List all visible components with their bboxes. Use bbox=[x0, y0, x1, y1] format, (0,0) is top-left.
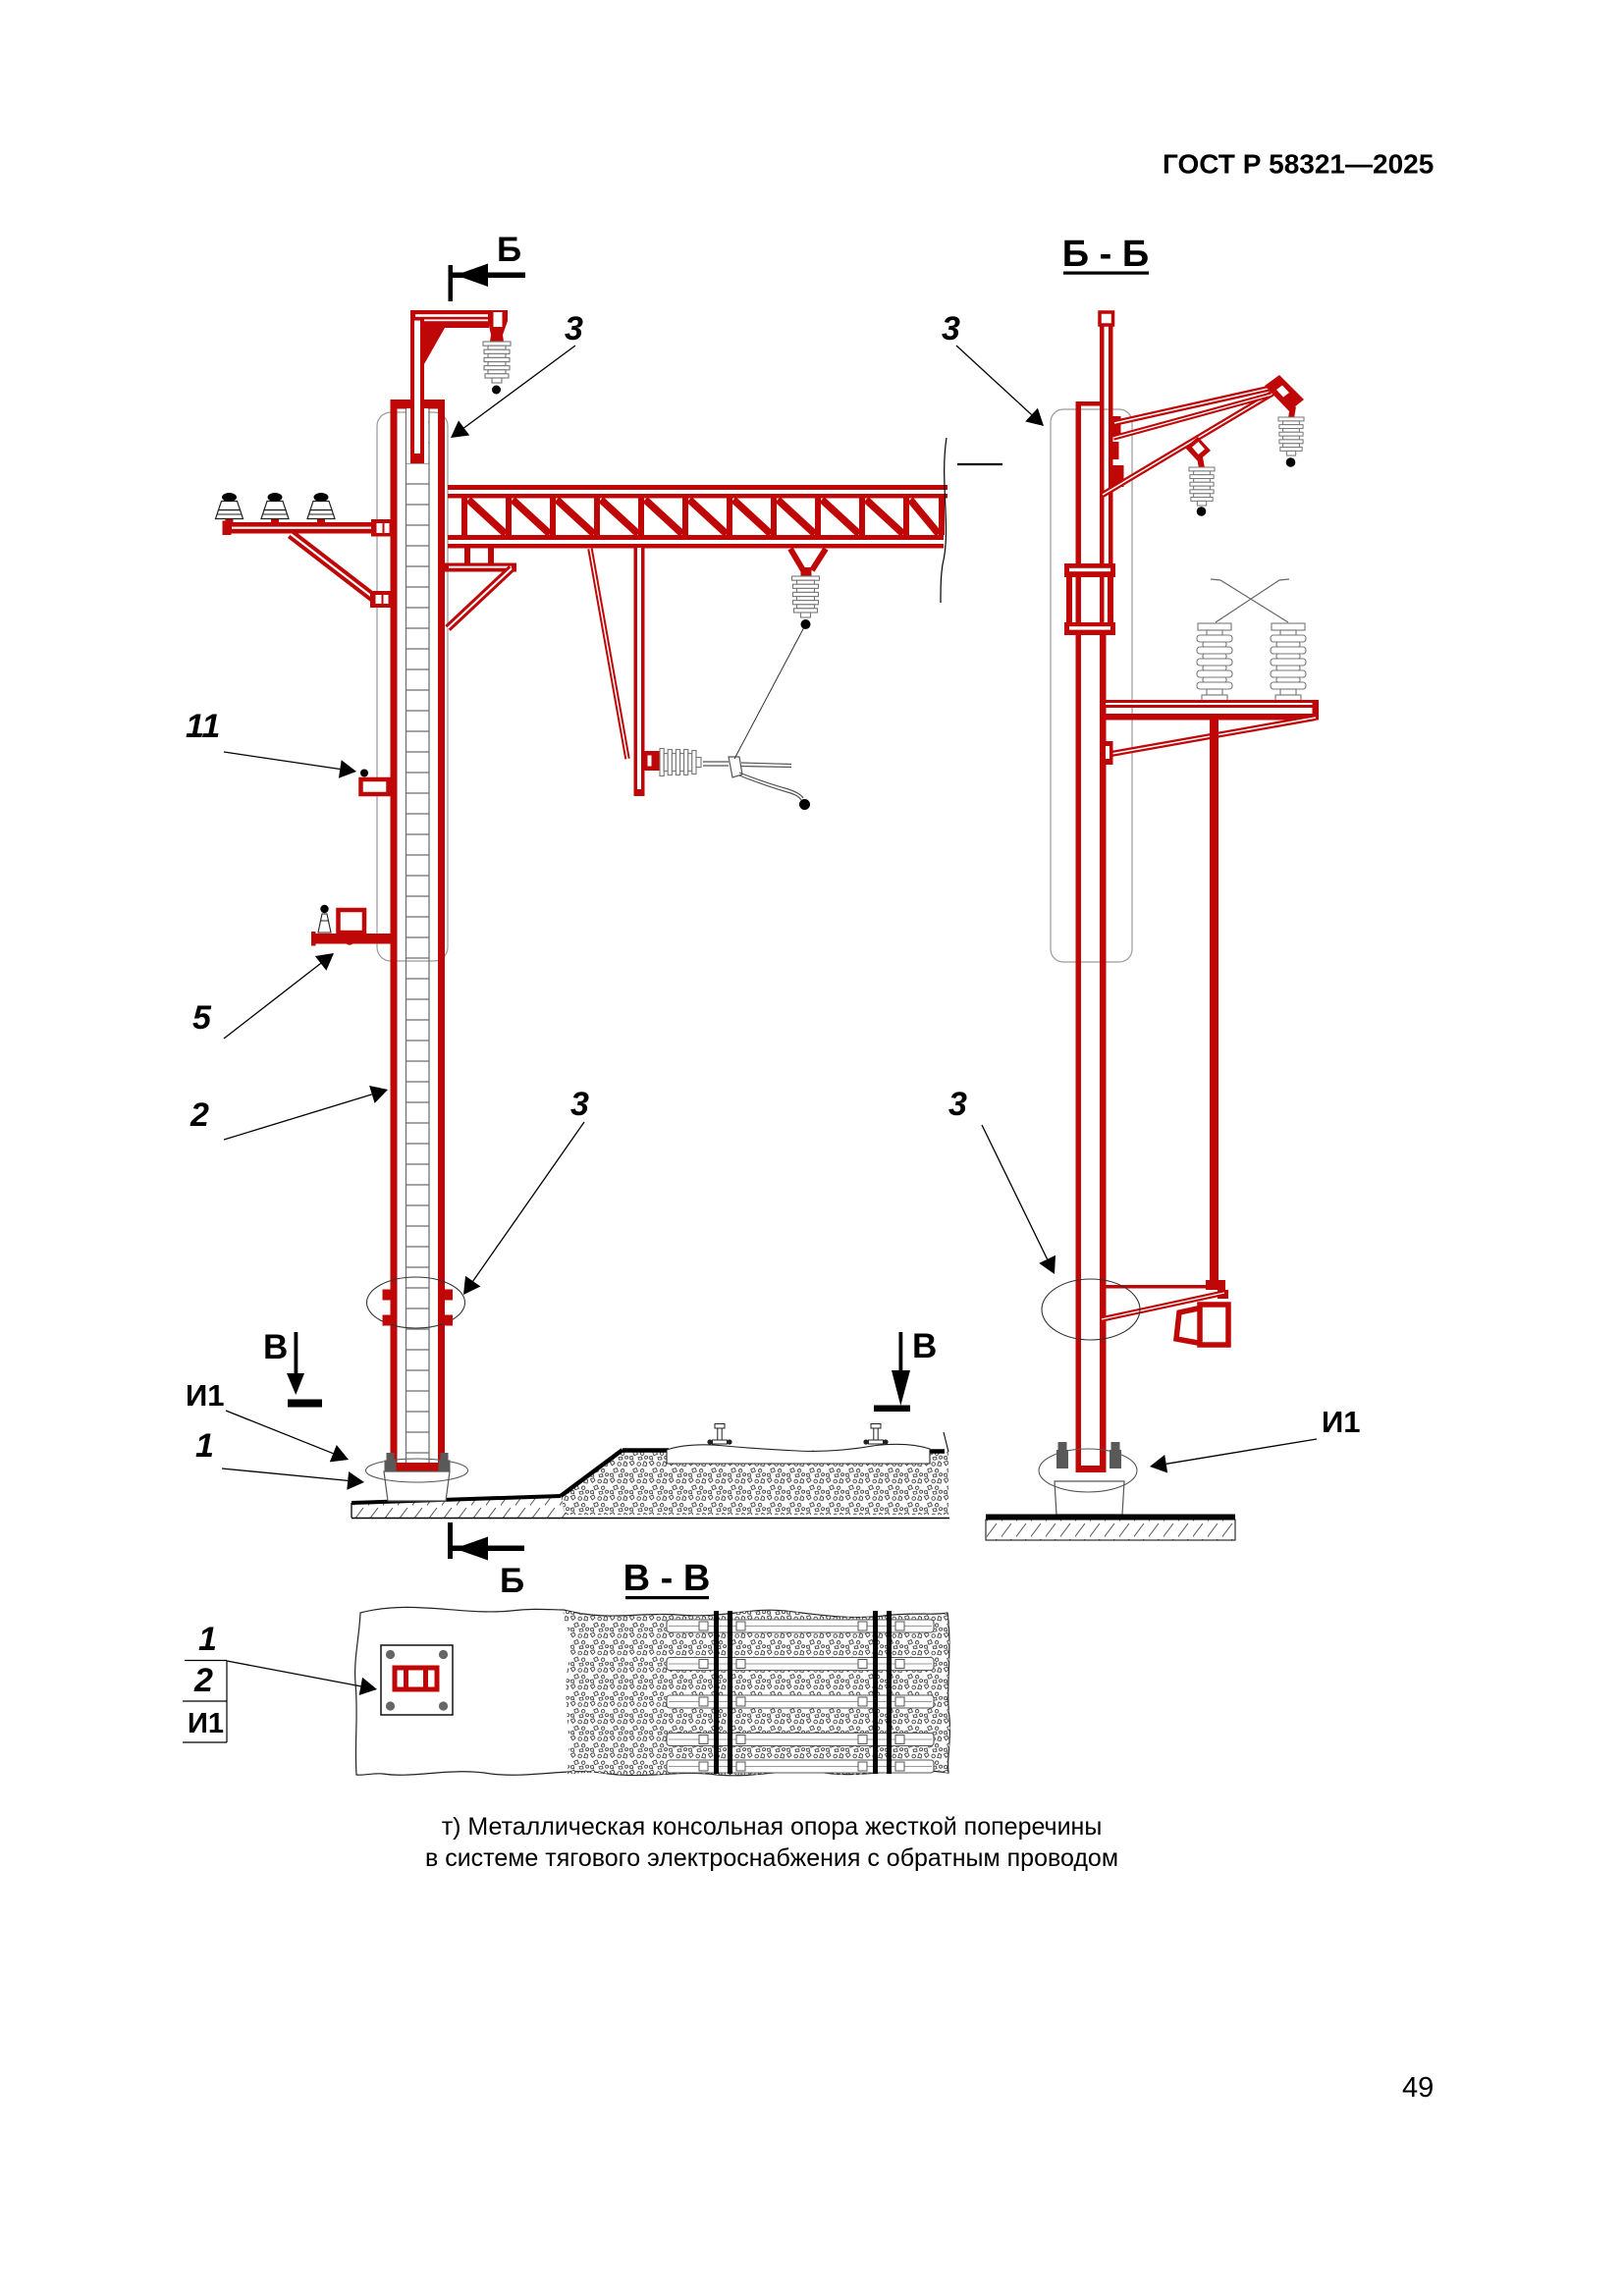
svg-text:И1: И1 bbox=[188, 1708, 224, 1739]
svg-text:ГОСТ Р 58321—2025: ГОСТ Р 58321—2025 bbox=[1163, 149, 1434, 180]
svg-text:3: 3 bbox=[565, 310, 583, 347]
svg-text:2: 2 bbox=[193, 1662, 213, 1699]
svg-text:И1: И1 bbox=[186, 1378, 225, 1413]
svg-text:В - В: В - В bbox=[623, 1558, 711, 1599]
svg-text:в системе тягового электроснаб: в системе тягового электроснабжения с об… bbox=[425, 1844, 1118, 1872]
svg-text:49: 49 bbox=[1402, 2072, 1434, 2104]
svg-text:3: 3 bbox=[570, 1086, 589, 1123]
svg-text:1: 1 bbox=[198, 1621, 217, 1658]
svg-text:1: 1 bbox=[195, 1427, 214, 1465]
svg-text:2: 2 bbox=[189, 1096, 209, 1134]
svg-text:И1: И1 bbox=[1322, 1405, 1361, 1439]
svg-text:5: 5 bbox=[192, 999, 212, 1037]
svg-text:11: 11 bbox=[186, 708, 220, 745]
svg-text:Б: Б bbox=[497, 231, 521, 269]
svg-text:т) Металлическая консольная оп: т) Металлическая консольная опора жестко… bbox=[442, 1813, 1103, 1841]
svg-text:Б - Б: Б - Б bbox=[1062, 234, 1149, 275]
svg-text:3: 3 bbox=[942, 310, 960, 347]
svg-text:В: В bbox=[263, 1328, 288, 1366]
svg-text:3: 3 bbox=[948, 1086, 967, 1123]
svg-text:В: В bbox=[912, 1327, 937, 1365]
svg-text:Б: Б bbox=[500, 1562, 524, 1600]
